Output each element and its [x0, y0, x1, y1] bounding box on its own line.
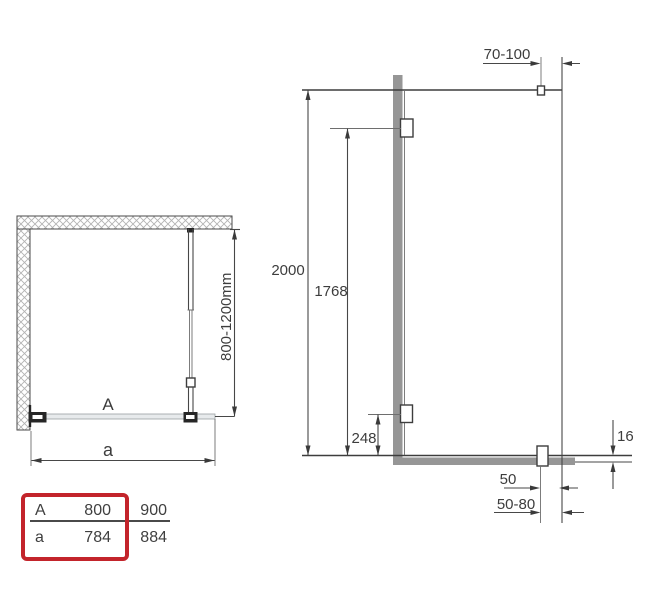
- dim-total-height-label: 2000: [271, 262, 304, 279]
- plan-glass-label: A: [102, 395, 114, 414]
- dim-bottom-profile: 16: [611, 420, 634, 489]
- plan-dim-support-range-label: 800-1200mm: [218, 273, 235, 361]
- floor-foot-bracket: [537, 446, 548, 466]
- dim-top-mount-range-label: 70-100: [484, 46, 531, 63]
- top-stabilizer-mount: [538, 86, 545, 95]
- plan-wall-clamp: [29, 405, 47, 427]
- dim-upper-bracket-height: 1768: [314, 129, 401, 456]
- lower-wall-bracket: [401, 405, 413, 423]
- dim-foot-offset-range-label: 50-80: [497, 496, 535, 513]
- plan-support-bar: [184, 228, 198, 423]
- selected-size-highlight-box: [21, 493, 129, 561]
- plan-wall-top: [17, 216, 232, 229]
- size-table-value: 884: [130, 529, 167, 547]
- plan-dim-width-label: a: [103, 440, 114, 460]
- dim-total-height: 2000: [271, 90, 310, 456]
- dim-top-mount-range: 70-100: [483, 46, 580, 66]
- elevation-view: 70-100 2000 1768: [271, 46, 633, 523]
- support-bar-clamp-slot: [186, 415, 195, 419]
- dim-upper-bracket-height-label: 1768: [314, 283, 347, 300]
- plan-wall-left: [17, 229, 30, 430]
- dim-foot-offset-range: 50-80: [494, 496, 584, 515]
- upper-wall-bracket: [401, 119, 414, 137]
- dim-foot-offset-label: 50: [500, 471, 517, 488]
- size-table: A 800 900 a 784 884: [20, 493, 190, 568]
- plan-view: A 800-1200mm a: [17, 216, 240, 466]
- support-bar-joint: [187, 378, 196, 387]
- dim-lower-bracket-height-label: 248: [351, 430, 376, 447]
- shower-screen-dimension-drawing: A 800-1200mm a: [0, 0, 647, 600]
- plan-dim-width: a: [31, 419, 215, 466]
- dim-bottom-profile-label: 16: [617, 428, 634, 445]
- plan-dim-support-range: 800-1200mm: [215, 230, 240, 417]
- dim-foot-offset: 50: [500, 471, 578, 491]
- size-table-value: 900: [130, 502, 167, 520]
